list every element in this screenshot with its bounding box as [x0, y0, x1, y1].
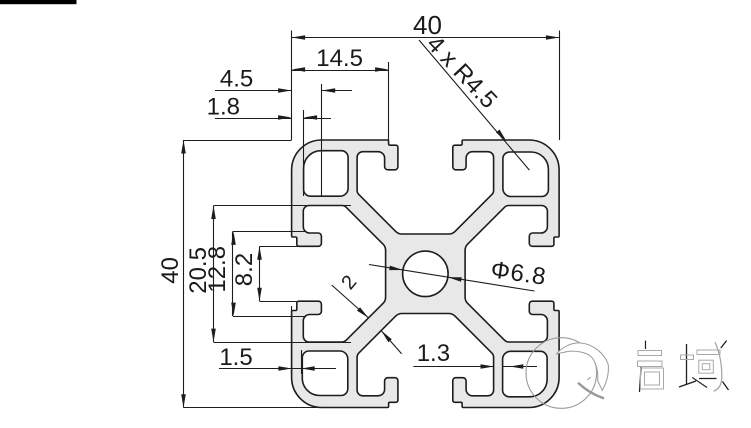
- svg-text:12.8: 12.8: [204, 246, 231, 293]
- svg-text:4 x R4.5: 4 x R4.5: [421, 31, 502, 114]
- svg-text:1.8: 1.8: [207, 94, 240, 121]
- svg-text:8.2: 8.2: [231, 253, 258, 286]
- svg-text:2: 2: [337, 271, 361, 294]
- svg-text:40: 40: [157, 257, 184, 284]
- svg-text:1.3: 1.3: [417, 340, 450, 367]
- svg-text:1.5: 1.5: [219, 344, 252, 371]
- svg-text:14.5: 14.5: [316, 45, 363, 72]
- svg-text:4.5: 4.5: [220, 66, 253, 93]
